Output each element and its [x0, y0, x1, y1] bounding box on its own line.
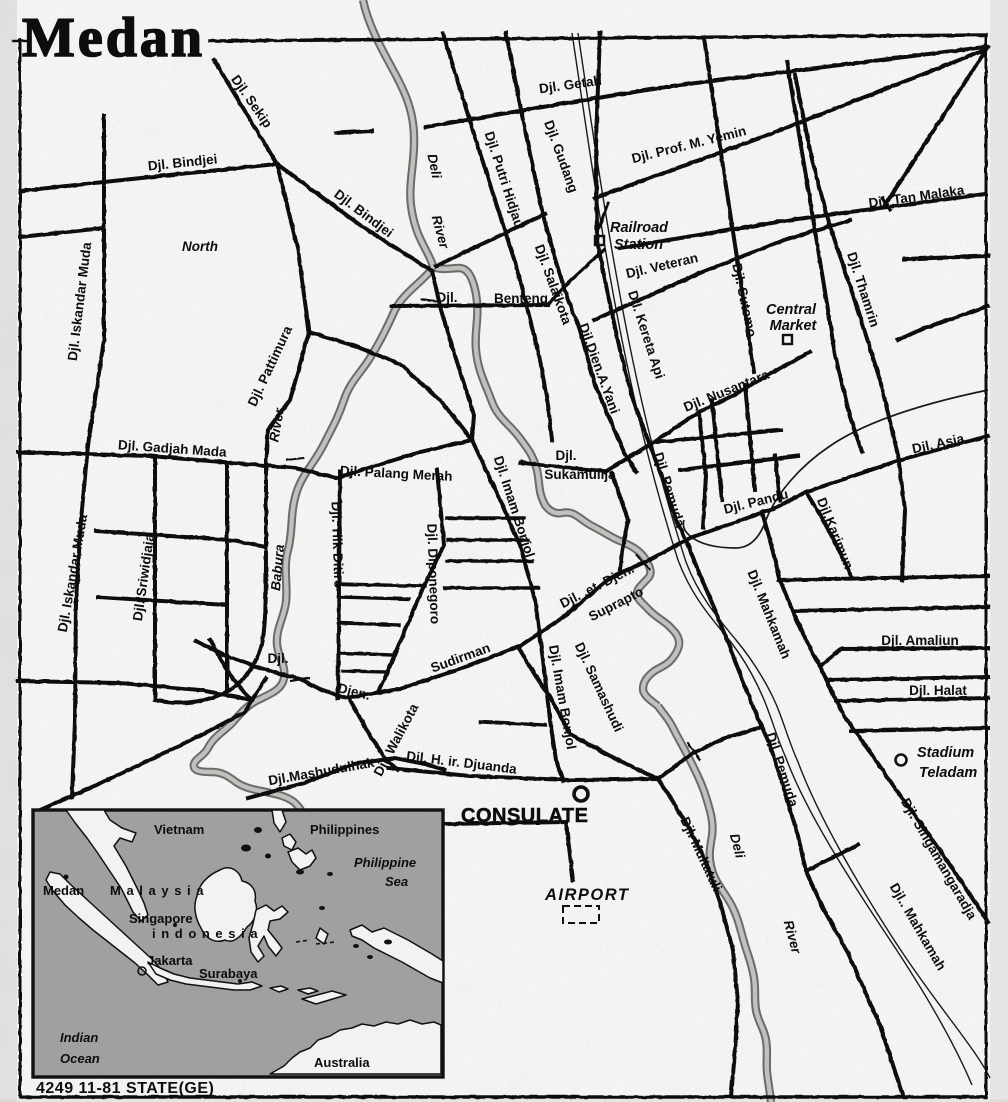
- svg-text:North: North: [182, 239, 218, 254]
- svg-text:Sea: Sea: [385, 874, 408, 889]
- svg-text:Medan: Medan: [43, 883, 84, 898]
- svg-text:Stadium: Stadium: [917, 745, 974, 761]
- svg-text:Singapore: Singapore: [129, 911, 193, 926]
- svg-text:Market: Market: [770, 318, 818, 334]
- svg-text:Djl. Tiik Ditiro: Djl. Tiik Ditiro: [328, 501, 346, 588]
- svg-text:Surabaya: Surabaya: [199, 966, 258, 981]
- svg-text:Djl.: Djl.: [267, 651, 288, 666]
- svg-text:Australia: Australia: [314, 1055, 370, 1070]
- svg-text:i n d o n e s i a: i n d o n e s i a: [152, 926, 259, 941]
- svg-text:Ocean: Ocean: [60, 1051, 100, 1066]
- svg-text:Philippines: Philippines: [310, 822, 379, 837]
- svg-text:Jakarta: Jakarta: [147, 953, 193, 968]
- svg-text:Teladam: Teladam: [919, 765, 977, 781]
- svg-text:Djl.: Djl.: [555, 448, 576, 463]
- svg-text:CONSULATE: CONSULATE: [461, 805, 588, 827]
- svg-text:AIRPORT: AIRPORT: [544, 886, 630, 904]
- svg-text:Indian: Indian: [60, 1030, 98, 1045]
- svg-text:Station: Station: [614, 237, 663, 253]
- svg-text:Vietnam: Vietnam: [154, 822, 204, 837]
- svg-text:Medan: Medan: [22, 7, 205, 69]
- svg-text:Djl. Amaliun: Djl. Amaliun: [881, 633, 959, 648]
- svg-text:M a l a y s i a: M a l a y s i a: [110, 883, 205, 898]
- svg-text:Benteng: Benteng: [494, 291, 548, 306]
- svg-text:Central: Central: [766, 302, 817, 318]
- svg-text:Sukamulija: Sukamulija: [544, 467, 616, 482]
- svg-text:Djl.: Djl.: [436, 290, 457, 305]
- svg-text:Railroad: Railroad: [610, 220, 669, 236]
- svg-text:Djl. Halat: Djl. Halat: [909, 683, 967, 698]
- svg-text:Philippine: Philippine: [354, 855, 416, 870]
- svg-text:4249 11-81 STATE(GE): 4249 11-81 STATE(GE): [36, 1080, 214, 1097]
